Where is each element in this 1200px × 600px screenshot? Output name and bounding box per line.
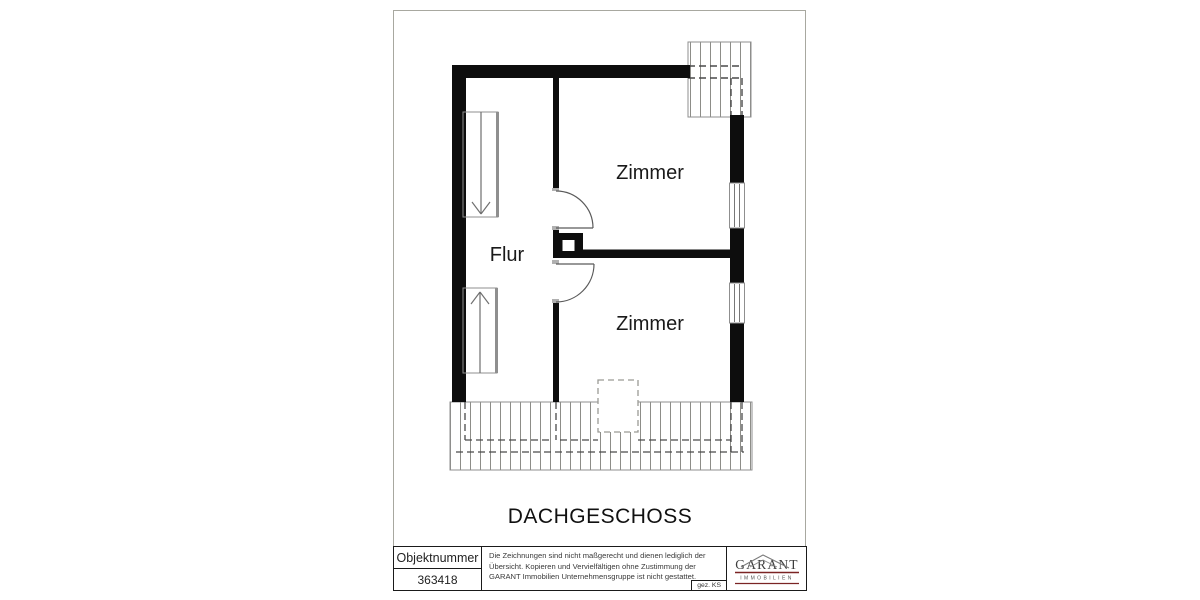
floor-title: DACHGESCHOSS [508, 505, 693, 528]
window-lower [730, 283, 745, 323]
room-label-zimmer-bottom: Zimmer [616, 313, 684, 335]
floor-plan-drawing: Zimmer Flur Zimmer DACHGESCHOSS [0, 0, 1200, 600]
hall-wall-lower [553, 302, 559, 402]
roof-overhang-bottom [450, 380, 752, 470]
left-wall [452, 65, 466, 402]
room-label-flur: Flur [490, 244, 525, 266]
right-wall-mid [730, 228, 744, 283]
hall-wall-upper [553, 78, 559, 191]
disclaimer-cell: Die Zeichnungen sind nicht maßgerecht un… [482, 547, 726, 590]
room-label-zimmer-top: Zimmer [616, 162, 684, 184]
window-upper [730, 183, 745, 228]
top-wall [452, 65, 690, 78]
door-lower-zimmer [552, 260, 594, 303]
chimney-symbol [553, 233, 583, 258]
object-number-value: 363418 [394, 569, 481, 590]
page: Zimmer Flur Zimmer DACHGESCHOSS Objektnu… [0, 0, 1200, 600]
door-upper-zimmer [552, 188, 593, 230]
title-block: Objektnummer 363418 Die Zeichnungen sind… [393, 546, 807, 591]
slope-arrow-lower [463, 288, 497, 373]
drawn-by-box: gez. KS [691, 580, 726, 590]
disclaimer-text: Die Zeichnungen sind nicht maßgerecht un… [489, 551, 719, 583]
logo-cell: GARANT IMMOBILIEN [726, 547, 806, 590]
object-number-label: Objektnummer [394, 547, 481, 569]
dormer-dashed-outline [598, 380, 638, 432]
logo-subtitle: IMMOBILIEN [740, 575, 793, 581]
object-number-cell: Objektnummer 363418 [394, 547, 482, 590]
right-wall-upper [730, 115, 744, 183]
right-wall-lower [730, 323, 744, 402]
garant-logo: GARANT IMMOBILIEN [730, 551, 804, 587]
slope-arrow-upper [463, 112, 498, 217]
roof-overhang-top-right [688, 42, 751, 117]
room-divider-wall [583, 250, 730, 259]
